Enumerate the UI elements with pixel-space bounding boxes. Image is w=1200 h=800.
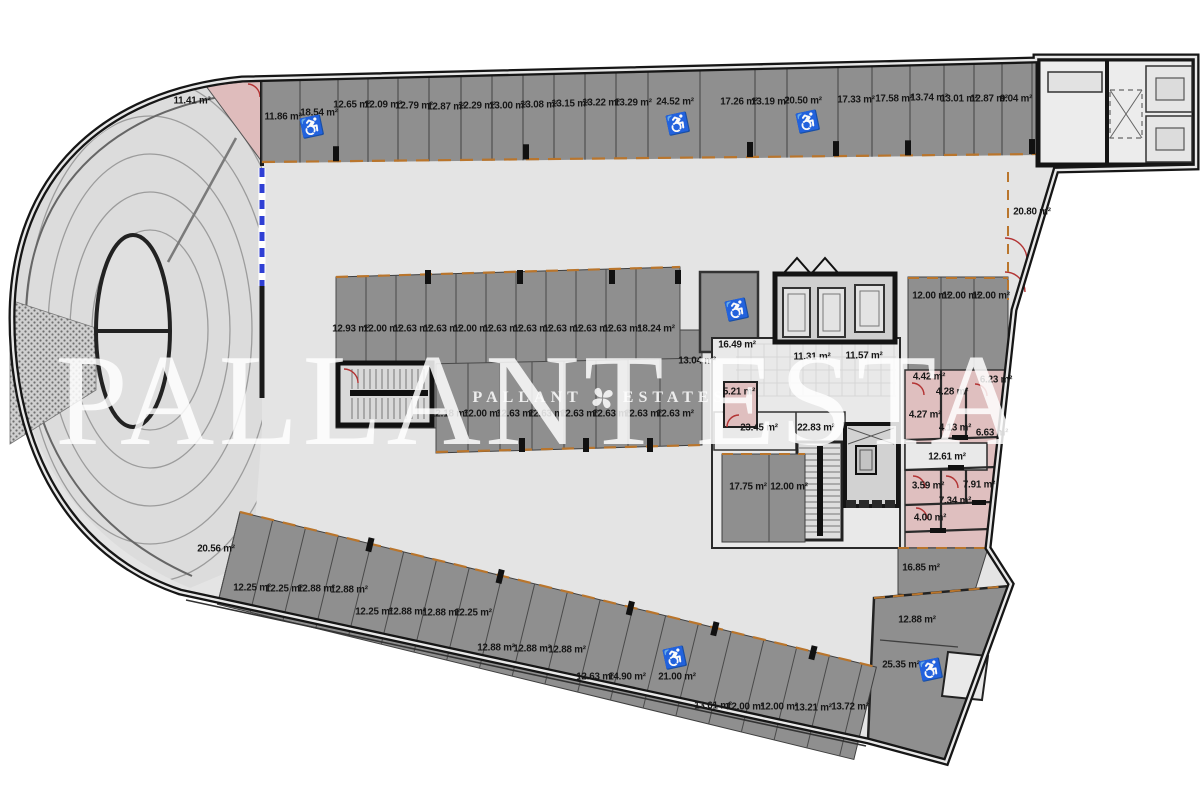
watermark-brand-right: ESTATES (696, 325, 1200, 476)
watermark-brand-right-small: ESTATES (623, 389, 728, 407)
flower-logo-icon-small (592, 387, 614, 409)
watermark-small: PALLANT ESTATES (473, 387, 728, 409)
top-right-plant-room (1038, 59, 1194, 165)
floor-plan: 11.41 m²11.86 m²18.54 m²12.65 m²12.09 m²… (0, 0, 1200, 800)
bottom-right-room (868, 586, 1009, 760)
watermark-brand-left-small: PALLANT (473, 389, 583, 407)
